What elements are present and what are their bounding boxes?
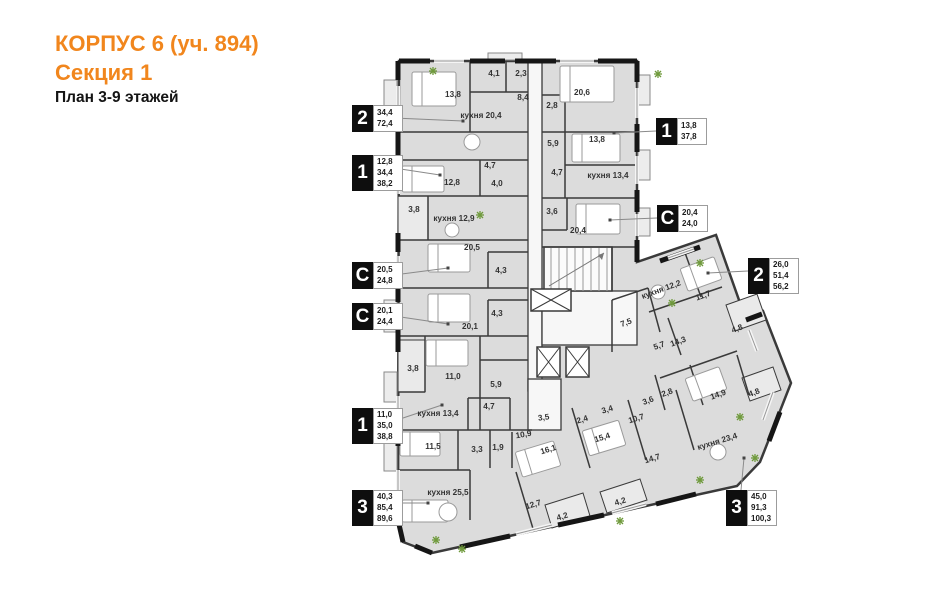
- apartment-area-value: 51,4: [773, 271, 795, 282]
- apartment-area-value: 35,0: [377, 421, 399, 432]
- room-area-label: 4,7: [483, 402, 495, 411]
- table-furniture: [464, 134, 480, 150]
- room-area-label: кухня 13,4: [587, 171, 629, 180]
- bed-furniture: [412, 72, 456, 106]
- apartment-area-value: 38,8: [377, 432, 399, 443]
- plant-icon: [736, 413, 744, 421]
- room-area-label: 3,8: [407, 364, 419, 373]
- room-area-label: 20,4: [570, 226, 586, 235]
- apartment-type-badge: С: [352, 303, 373, 330]
- plant-icon: [429, 67, 437, 75]
- apartment-areas: 13,837,8: [677, 118, 707, 145]
- apartment-legend-item: С20,124,4: [352, 303, 403, 330]
- plant-icon: [616, 517, 624, 525]
- room-area-label: 20,5: [464, 243, 480, 252]
- apartment-legend-item: С20,524,8: [352, 262, 403, 289]
- plant-icon: [458, 545, 466, 553]
- apartment-area-value: 34,4: [377, 108, 399, 119]
- plant-icon: [696, 259, 704, 267]
- apartment-legend-item: 345,091,3100,3: [726, 490, 777, 526]
- apartment-legend-item: 113,837,8: [656, 118, 707, 145]
- apartment-areas: 12,834,438,2: [373, 155, 403, 191]
- balcony: [384, 372, 397, 402]
- apartment-area-value: 56,2: [773, 282, 795, 293]
- apartment-areas: 20,424,0: [678, 205, 708, 232]
- room-area-label: кухня 25,5: [427, 488, 469, 497]
- plant-icon: [432, 536, 440, 544]
- apartment-area-value: 20,5: [377, 265, 399, 276]
- apartment-area-value: 89,6: [377, 514, 399, 525]
- apartment-type-badge: 2: [748, 258, 769, 294]
- apartment-area-value: 20,1: [377, 306, 399, 317]
- apartment-area-value: 85,4: [377, 503, 399, 514]
- room-area-label: 4,0: [491, 179, 503, 188]
- apartment-area-value: 24,4: [377, 317, 399, 328]
- room-area-label: 4,3: [491, 309, 503, 318]
- legend-leader-dot: [439, 174, 442, 177]
- apartment-legend-item: 226,051,456,2: [748, 258, 799, 294]
- room-area-label: 11,5: [425, 442, 441, 451]
- apartment-areas: 34,472,4: [373, 105, 403, 132]
- room-area-label: 3,6: [546, 207, 558, 216]
- room-area-label: 4,7: [484, 161, 496, 170]
- loggia: [398, 196, 428, 240]
- balcony: [638, 208, 650, 236]
- apartment-area-value: 34,4: [377, 168, 399, 179]
- apartment-type-badge: 2: [352, 105, 373, 132]
- apartment-area-value: 72,4: [377, 119, 399, 130]
- apartment-legend-item: С20,424,0: [657, 205, 708, 232]
- apartment-area-value: 40,3: [377, 492, 399, 503]
- room-area-label: кухня 20,4: [460, 111, 502, 120]
- legend-leader-dot: [743, 457, 746, 460]
- apartment-type-badge: 3: [352, 490, 373, 526]
- room-area-label: 13,8: [445, 90, 461, 99]
- room-area-label: кухня 13,4: [417, 409, 459, 418]
- apartment-type-badge: 1: [352, 408, 373, 444]
- apartment-type-badge: 1: [352, 155, 373, 191]
- legend-leader-dot: [441, 404, 444, 407]
- table-furniture: [439, 503, 457, 521]
- bed-furniture: [428, 294, 470, 322]
- corridor: [528, 61, 542, 391]
- room-area-label: 8,4: [517, 93, 529, 102]
- apartment-area-value: 37,8: [681, 132, 703, 143]
- room-area-label: 3,3: [471, 445, 483, 454]
- room-area-label: 13,8: [589, 135, 605, 144]
- room-area-label: 12,8: [444, 178, 460, 187]
- table-furniture: [445, 223, 459, 237]
- plant-icon: [476, 211, 484, 219]
- legend-leader-dot: [447, 323, 450, 326]
- apartment-type-badge: С: [352, 262, 373, 289]
- plant-icon: [696, 476, 704, 484]
- apartment-area-value: 38,2: [377, 179, 399, 190]
- legend-leader-dot: [707, 272, 710, 275]
- room-area-label: 2,3: [515, 69, 527, 78]
- apartment-area-value: 91,3: [751, 503, 773, 514]
- apartment-area-value: 24,8: [377, 276, 399, 287]
- apartment-area-value: 26,0: [773, 260, 795, 271]
- apartment-area-value: 20,4: [682, 208, 704, 219]
- room-area-label: 1,9: [492, 443, 504, 452]
- apartment-area-value: 11,0: [377, 410, 399, 421]
- legend-leader-dot: [613, 132, 616, 135]
- room-area-label: кухня 12,9: [433, 214, 475, 223]
- balcony: [638, 150, 650, 180]
- vestibule: [528, 379, 561, 430]
- balcony: [638, 75, 650, 105]
- apartment-areas: 26,051,456,2: [769, 258, 799, 294]
- apartment-areas: 20,124,4: [373, 303, 403, 330]
- room-area-label: 20,1: [462, 322, 478, 331]
- room-area-label: 20,6: [574, 88, 590, 97]
- room-area-label: 3,8: [408, 205, 420, 214]
- room-area-label: 4,7: [551, 168, 563, 177]
- legend-leader-dot: [447, 267, 450, 270]
- apartment-area-value: 100,3: [751, 514, 773, 525]
- balcony: [384, 443, 397, 471]
- apartment-type-badge: 3: [726, 490, 747, 526]
- apartment-areas: 11,035,038,8: [373, 408, 403, 444]
- room-area-label: 4,3: [495, 266, 507, 275]
- apartment-areas: 20,524,8: [373, 262, 403, 289]
- room-area-label: 4,1: [488, 69, 500, 78]
- apartment-legend-item: 234,472,4: [352, 105, 403, 132]
- apartment-type-badge: С: [657, 205, 678, 232]
- apartment-area-value: 24,0: [682, 219, 704, 230]
- room-area-label: 5,9: [490, 380, 502, 389]
- floor-plan: 13,84,12,38,4кухня 20,420,62,85,913,84,7…: [0, 0, 941, 600]
- apartment-legend-item: 340,385,489,6: [352, 490, 403, 526]
- apartment-areas: 45,091,3100,3: [747, 490, 777, 526]
- bed-furniture: [426, 340, 468, 366]
- plant-icon: [751, 454, 759, 462]
- apartment-area-value: 13,8: [681, 121, 703, 132]
- apartment-legend-item: 111,035,038,8: [352, 408, 403, 444]
- plant-icon: [654, 70, 662, 78]
- legend-leader-dot: [609, 219, 612, 222]
- apartment-type-badge: 1: [656, 118, 677, 145]
- room-area-label: 11,0: [445, 372, 461, 381]
- apartment-area-value: 12,8: [377, 157, 399, 168]
- room-area-label: 3,5: [537, 412, 550, 423]
- plant-icon: [668, 299, 676, 307]
- room-area-label: 2,8: [546, 101, 558, 110]
- apartment-areas: 40,385,489,6: [373, 490, 403, 526]
- legend-leader-dot: [427, 502, 430, 505]
- room-area-label: 5,9: [547, 139, 559, 148]
- apartment-area-value: 45,0: [751, 492, 773, 503]
- apartment-legend-item: 112,834,438,2: [352, 155, 403, 191]
